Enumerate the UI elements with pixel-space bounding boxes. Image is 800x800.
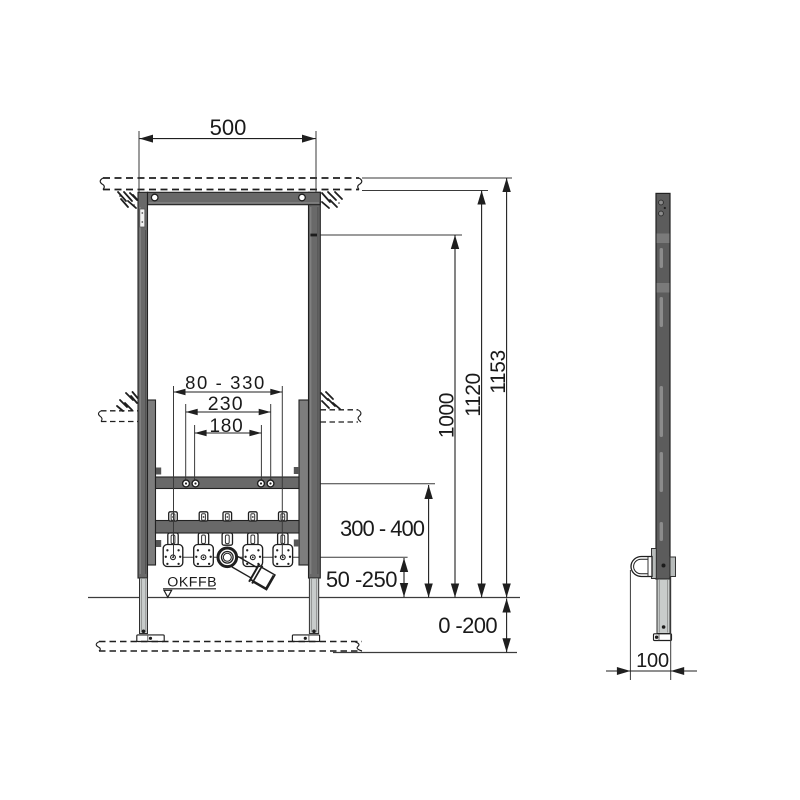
svg-text:50 -250: 50 -250 [326, 567, 397, 592]
svg-text:1153: 1153 [487, 350, 510, 394]
svg-text:0 -200: 0 -200 [438, 613, 497, 638]
svg-text:100: 100 [636, 650, 669, 672]
svg-text:OKFFB: OKFFB [167, 575, 217, 591]
svg-text:1120: 1120 [462, 373, 485, 417]
svg-text:500: 500 [210, 115, 247, 140]
svg-text:300 - 400: 300 - 400 [340, 516, 425, 541]
svg-text:1000: 1000 [436, 393, 459, 438]
svg-text:230: 230 [208, 393, 244, 415]
svg-text:180: 180 [209, 416, 243, 437]
svg-text:80 - 330: 80 - 330 [185, 372, 266, 393]
